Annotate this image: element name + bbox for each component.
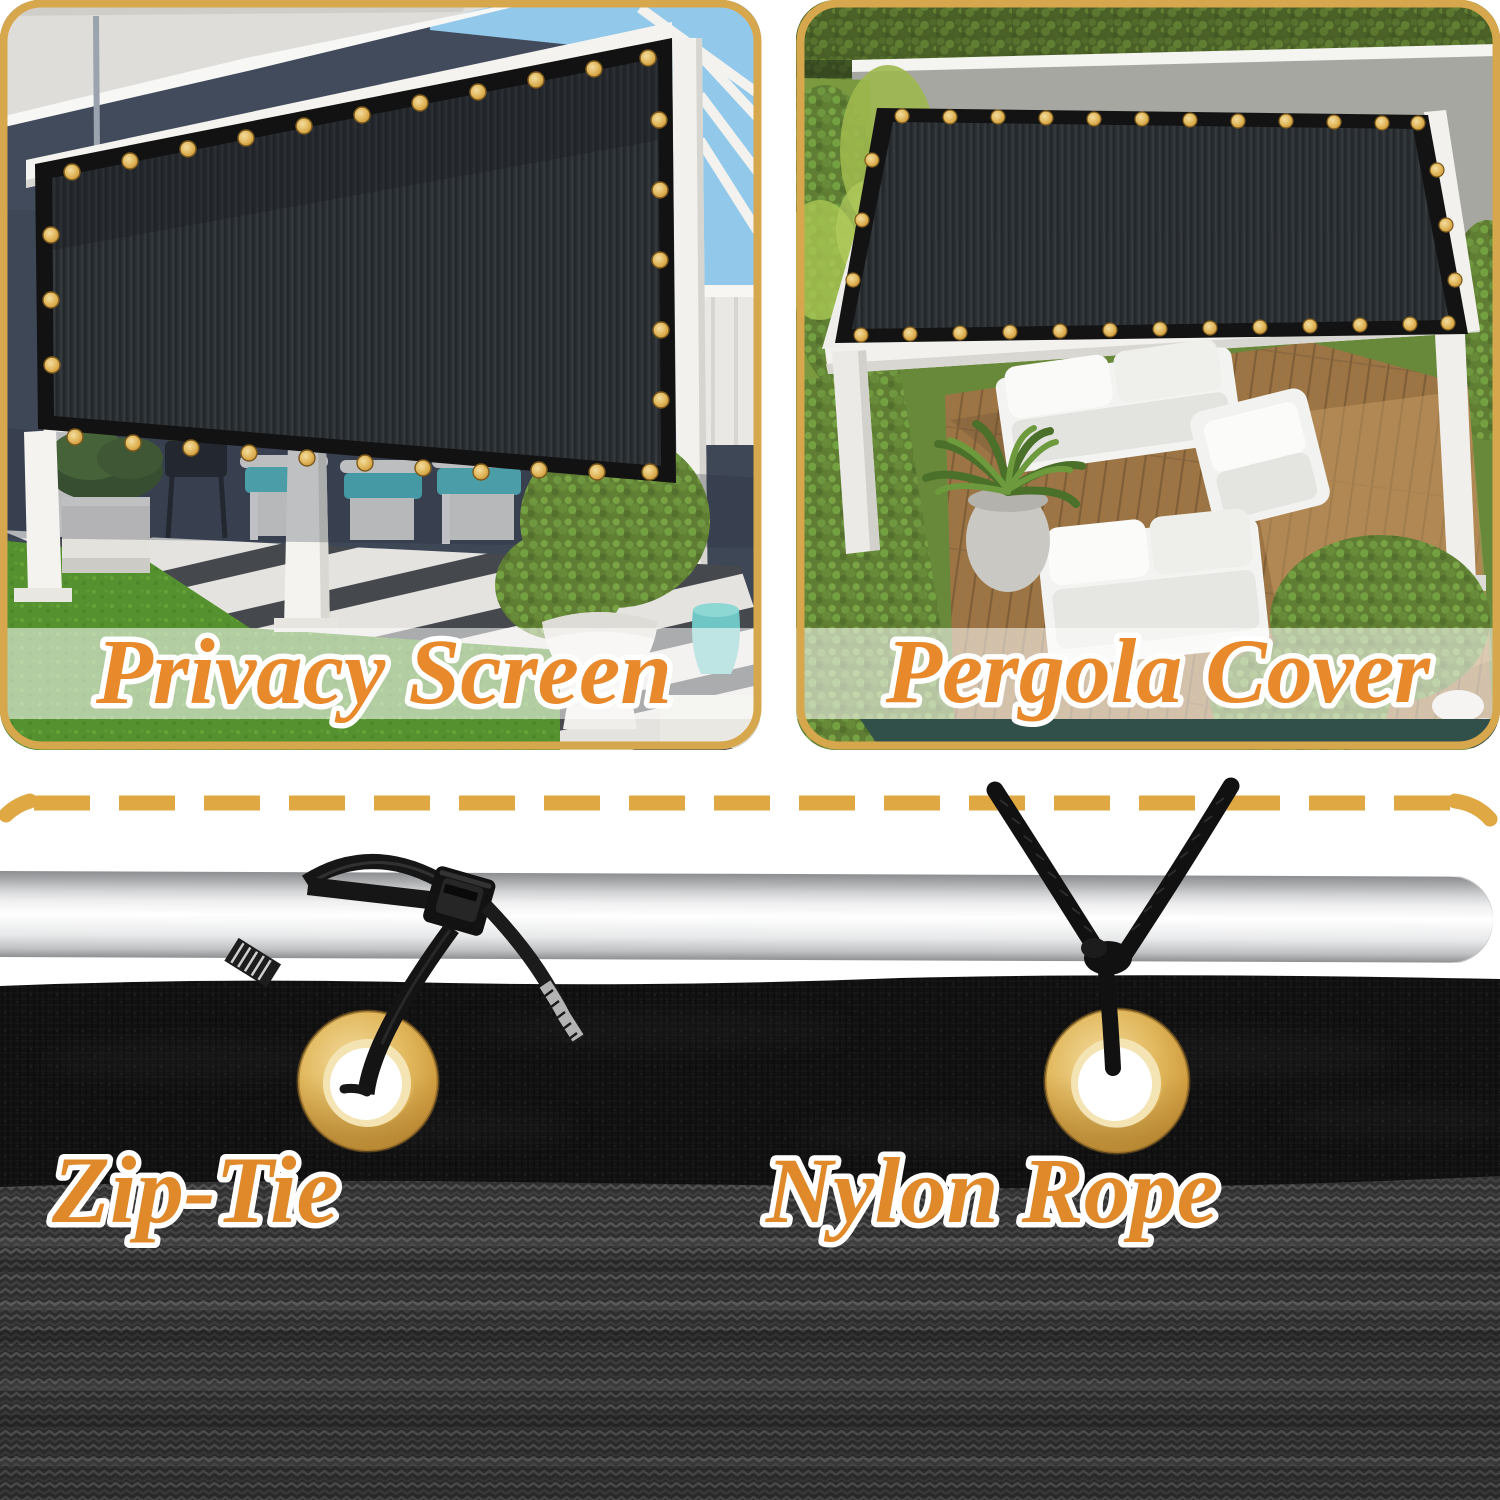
svg-text:Privacy Screen: Privacy Screen (95, 621, 672, 724)
svg-text:Nylon Rope: Nylon Rope (765, 1140, 1218, 1243)
svg-text:Zip-Tie: Zip-Tie (51, 1137, 339, 1243)
svg-text:Pergola Cover: Pergola Cover (885, 620, 1431, 722)
